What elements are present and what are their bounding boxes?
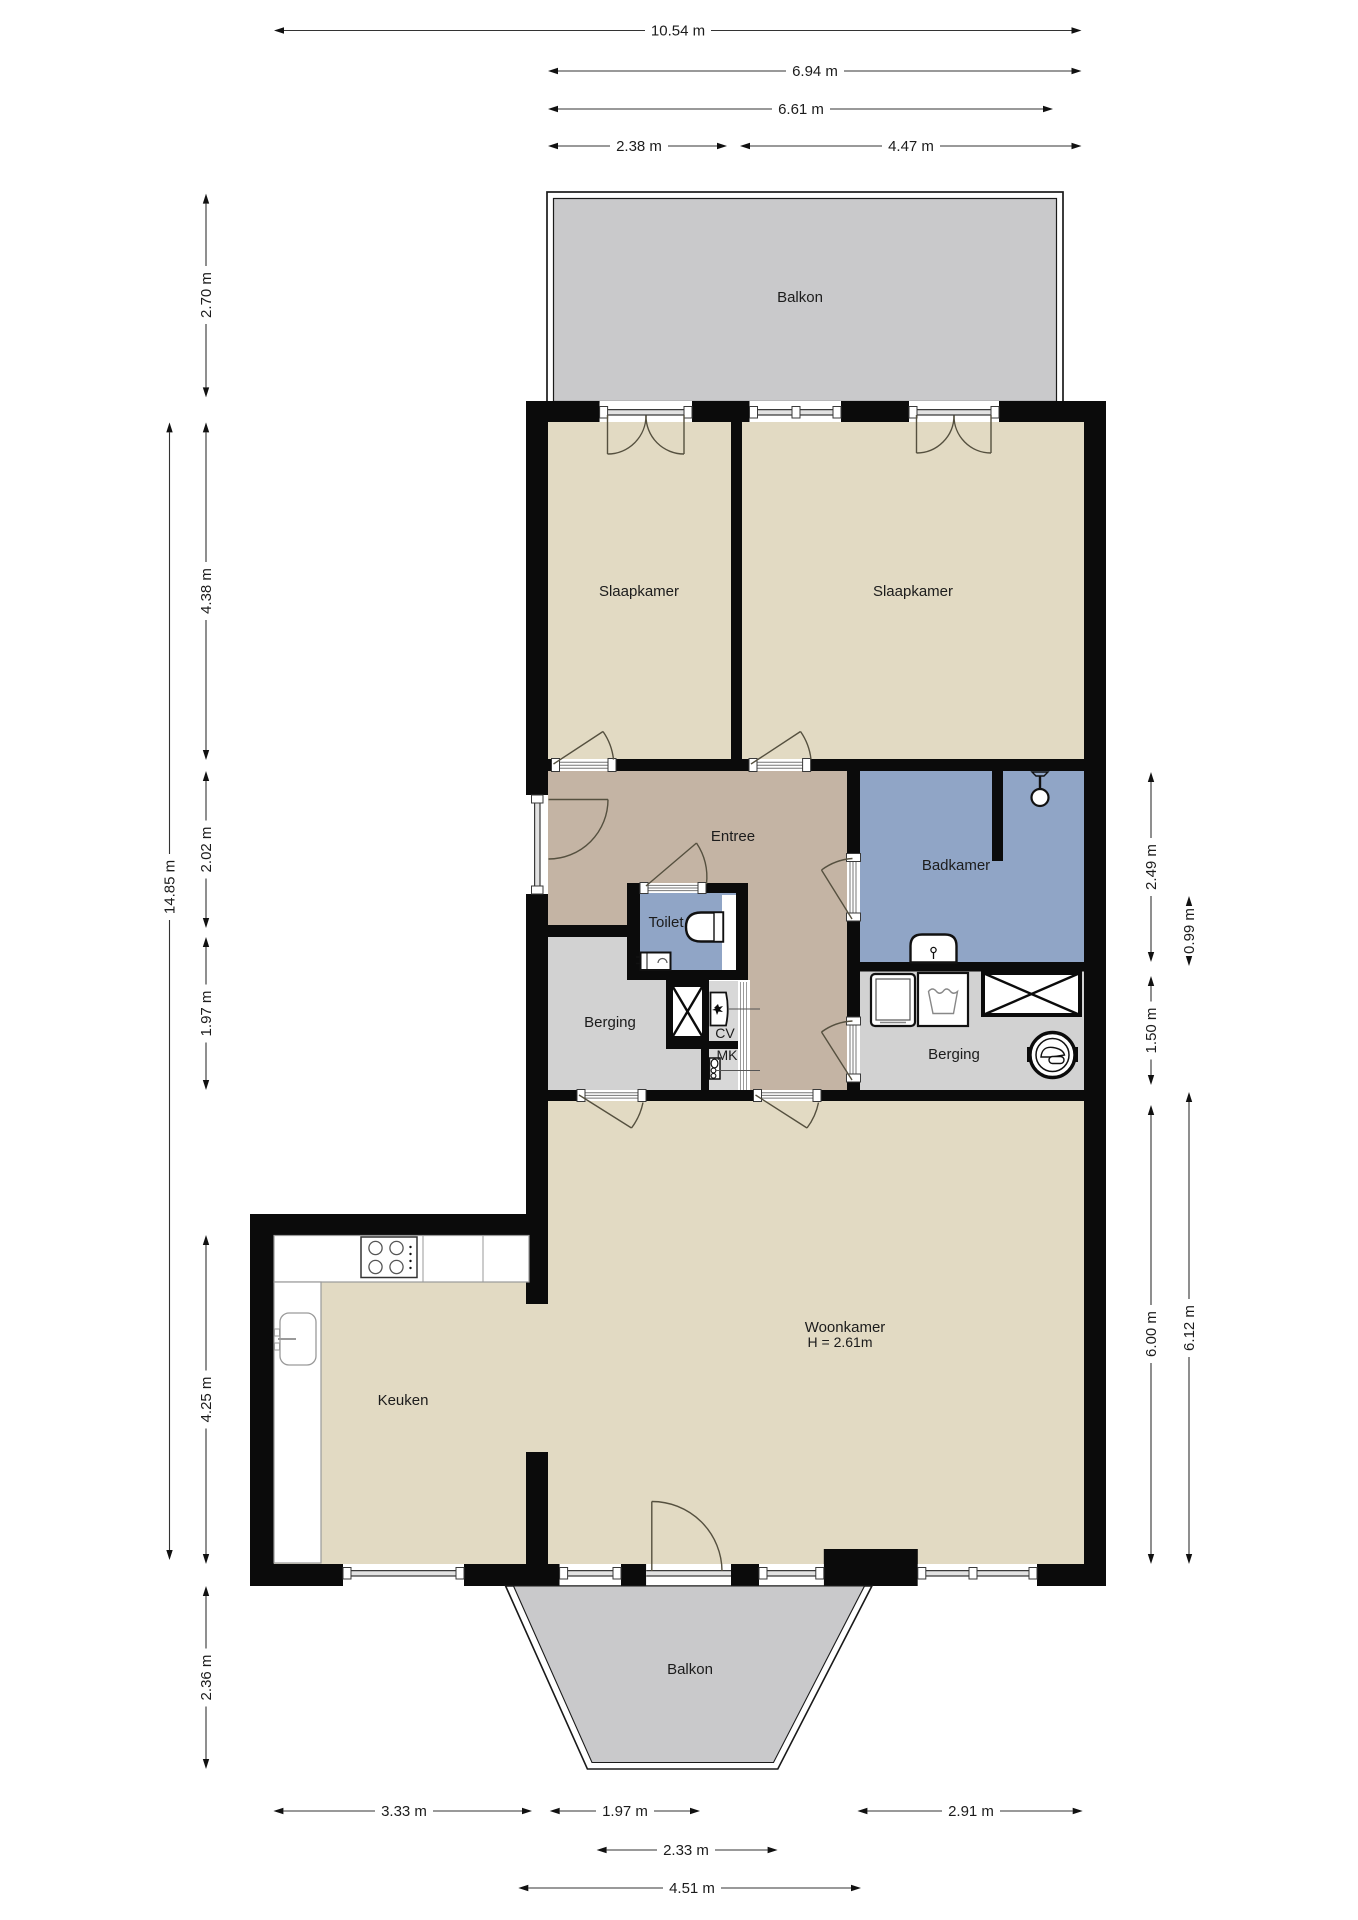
svg-text:2.38 m: 2.38 m [616,138,662,155]
svg-text:2.36 m: 2.36 m [198,1655,215,1701]
svg-text:6.94 m: 6.94 m [792,63,838,80]
svg-text:2.91 m: 2.91 m [948,1803,994,1820]
svg-text:Slaapkamer: Slaapkamer [873,583,953,600]
svg-text:4.25 m: 4.25 m [198,1377,215,1423]
svg-text:2.02 m: 2.02 m [198,827,215,873]
svg-text:1.97 m: 1.97 m [602,1803,648,1820]
svg-text:Toilet: Toilet [648,914,684,931]
svg-text:Balkon: Balkon [777,289,823,306]
svg-text:2.70 m: 2.70 m [198,272,215,318]
svg-text:2.49 m: 2.49 m [1143,844,1160,890]
svg-text:6.61 m: 6.61 m [778,101,824,118]
svg-text:Badkamer: Badkamer [922,857,990,874]
svg-text:Balkon: Balkon [667,1661,713,1678]
svg-text:2.33 m: 2.33 m [663,1842,709,1859]
svg-text:Entree: Entree [711,828,755,845]
svg-text:6.00 m: 6.00 m [1143,1311,1160,1357]
svg-text:1.97 m: 1.97 m [198,991,215,1037]
svg-text:Berging: Berging [928,1046,980,1063]
svg-text:Berging: Berging [584,1014,636,1031]
svg-text:3.33 m: 3.33 m [381,1803,427,1820]
svg-text:Keuken: Keuken [378,1392,429,1409]
svg-text:4.51 m: 4.51 m [669,1880,715,1897]
svg-text:H = 2.61m: H = 2.61m [808,1334,873,1350]
svg-text:14.85 m: 14.85 m [162,860,179,914]
svg-text:MK: MK [717,1047,739,1063]
svg-text:0.99 m: 0.99 m [1181,908,1198,954]
svg-text:10.54 m: 10.54 m [651,23,705,40]
svg-text:4.47 m: 4.47 m [888,138,934,155]
svg-text:6.12 m: 6.12 m [1181,1305,1198,1351]
svg-text:1.50 m: 1.50 m [1143,1008,1160,1054]
svg-text:Slaapkamer: Slaapkamer [599,583,679,600]
svg-text:4.38 m: 4.38 m [198,568,215,614]
svg-text:CV: CV [715,1025,735,1041]
